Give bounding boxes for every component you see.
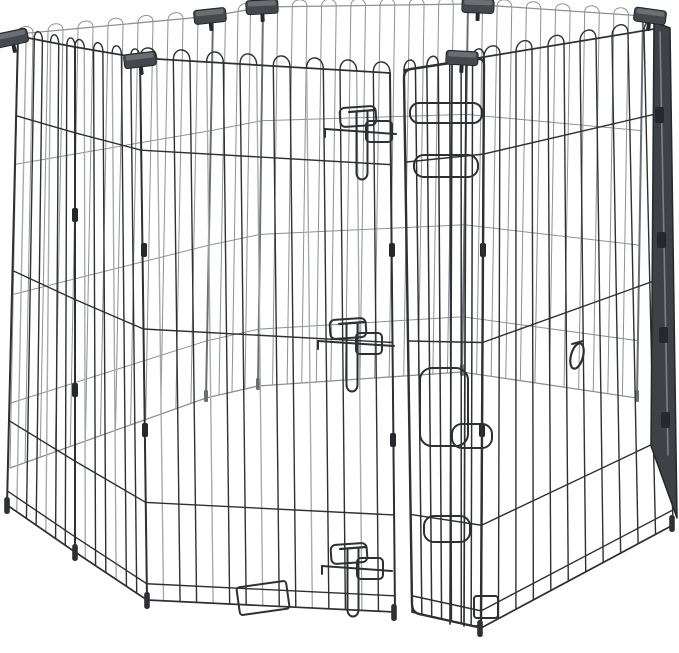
anchor-loops (236, 581, 498, 618)
slide-latch (322, 543, 392, 617)
exercise-pen-illustration (0, 0, 679, 653)
corner-clip (193, 7, 227, 32)
folded-panel-edge (651, 22, 677, 518)
product-photo (0, 0, 679, 653)
wire-panel-back (462, 0, 643, 398)
corner-clips (0, 0, 667, 77)
slide-latch (318, 318, 394, 392)
corner-clip (461, 0, 494, 22)
